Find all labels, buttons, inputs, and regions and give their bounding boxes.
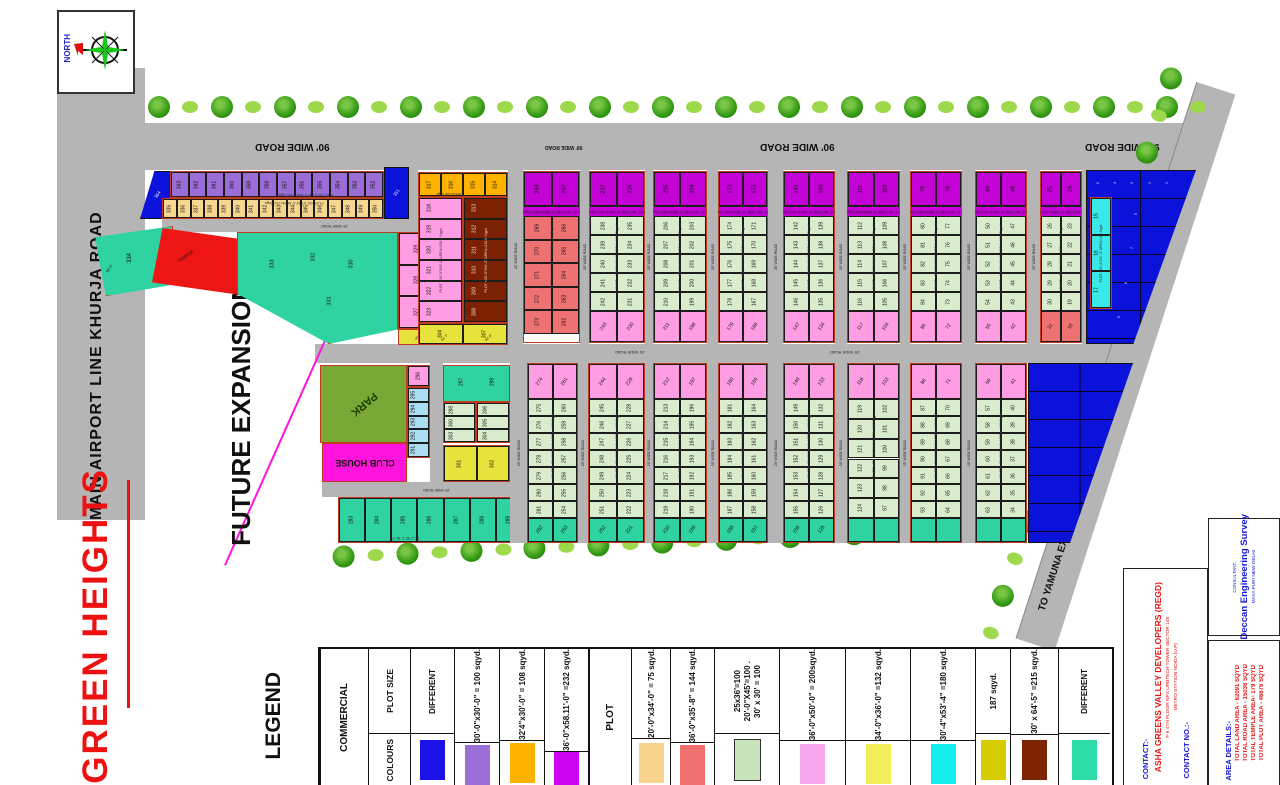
teal-big: 333332330331 xyxy=(237,232,398,344)
plot-number: 142 xyxy=(794,221,799,229)
plot-cell: 234 xyxy=(617,235,644,254)
plot-number: 267 xyxy=(563,184,569,193)
plot-cell: 302 xyxy=(477,446,510,481)
tree-icon xyxy=(904,96,926,118)
plot-number: 64 xyxy=(946,507,951,513)
plot-cell: 172 xyxy=(743,172,767,206)
plot-number: 320 xyxy=(428,245,433,253)
plot-cell: 304 xyxy=(477,429,509,442)
plot-number: 162 xyxy=(753,437,758,445)
plot-number: 284 xyxy=(376,516,381,524)
plot-number: 302 xyxy=(490,459,495,467)
plot-number: 232 xyxy=(628,278,633,286)
area-total-road: TOTAL ROAD AREA - 15036 SQYD xyxy=(1243,664,1249,762)
plot-cell: 92 xyxy=(911,484,936,501)
plot-cell: 83 xyxy=(911,273,936,292)
plot-number: 8 xyxy=(1124,282,1128,284)
plot-cell: 314 xyxy=(485,173,507,196)
plot-cell: 25 xyxy=(1041,172,1061,206)
tree-icon xyxy=(778,96,800,118)
plot-cell: 258 xyxy=(553,433,578,450)
plot-number: 98 xyxy=(884,485,889,491)
plot-number: 301 xyxy=(458,459,463,467)
plot-number: 169 xyxy=(753,259,758,267)
plot-number: 240 xyxy=(601,259,606,267)
plot-number: 206 xyxy=(665,221,670,229)
plot-number: 229 xyxy=(626,377,635,387)
plot-cell: 135 xyxy=(809,292,834,311)
plot-cell: 222 xyxy=(617,501,645,518)
plot-number: 268 xyxy=(535,184,541,193)
legend-text: 30' x 30' = 100 xyxy=(753,665,762,718)
plot-strip: 2442292452282462272472262482252492242502… xyxy=(588,363,645,543)
plot-number: 48 xyxy=(1011,186,1017,192)
legend-size: 187 sqyd. xyxy=(976,649,1010,733)
plot-number: 29 xyxy=(1049,280,1054,286)
plot-cell: 146 xyxy=(784,292,809,311)
plot-number: 203 xyxy=(691,221,696,229)
blue-block: 351 xyxy=(384,167,409,219)
plot-number: 108 xyxy=(884,240,889,248)
tree-icon xyxy=(623,101,639,113)
plot-number: 347 xyxy=(332,204,337,212)
plot-cell: 27 xyxy=(1041,235,1061,254)
road-label: 25' WIDE ROAD xyxy=(583,244,587,270)
plot-cell: 288 xyxy=(470,498,496,542)
plot-cell: 190 xyxy=(680,501,706,518)
plot-number: 304 xyxy=(483,431,488,439)
plot-number: 151 xyxy=(794,437,799,445)
plot-number: 308 xyxy=(473,307,478,315)
plot-cell: 69 xyxy=(936,416,961,433)
road-label: PLOT =36'-0"X58'-11" AREA=232.0 Sqyd. xyxy=(713,210,772,214)
plot-cell: 38 xyxy=(1001,433,1026,450)
plot-cell: 286 xyxy=(417,498,443,542)
plot-number: 156 xyxy=(792,525,801,535)
tree-icon xyxy=(396,542,419,565)
plot-cell: 265 xyxy=(552,240,580,264)
plot-number: 105 xyxy=(884,297,889,305)
plot-number: 126 xyxy=(819,505,824,513)
plot-number: 299 xyxy=(490,378,495,386)
legend-commercial-item-2: 32'4"x30'-0" = 108 sqyd. xyxy=(499,649,544,785)
plot-cell: 284 xyxy=(365,498,391,542)
plot-cell: 148 xyxy=(784,364,809,399)
top-road: 90' WIDE ROAD90' WIDE ROAD90' WIDE ROAD9… xyxy=(145,123,1202,170)
plot-number: 244 xyxy=(598,377,607,387)
plot-number: 124 xyxy=(858,504,863,512)
legend-swatch-cell xyxy=(455,742,499,785)
tree-icon xyxy=(182,101,198,113)
inner-road: 25' WIDE ROAD xyxy=(768,363,783,543)
plot-cell: 180 xyxy=(719,364,743,399)
plot-cell: 167 xyxy=(743,292,767,311)
plot-cell: 115 xyxy=(848,273,874,292)
plot-cell: 138 xyxy=(809,235,834,254)
plot-number: 188 xyxy=(727,525,736,535)
ltblue-col: 295294293292291 xyxy=(407,387,430,458)
plot-number: 271 xyxy=(535,271,540,279)
contact-company: ASHA GREENS VALLEY DEVELOPERS (REGD) xyxy=(1153,582,1163,772)
plot-number: 295 xyxy=(411,391,416,399)
tree-icon xyxy=(308,101,324,113)
plot-number: 226 xyxy=(628,437,633,445)
plot-strip: 2742612752602762592772582782572792562802… xyxy=(527,363,578,543)
plot-number: 187 xyxy=(729,505,734,513)
plot-cell: 169 xyxy=(743,254,767,273)
plot-cell: 250 xyxy=(589,484,617,501)
plot-cell: 277 xyxy=(528,433,553,450)
plot-number: 141 xyxy=(794,184,800,193)
plot-cell: 179 xyxy=(719,311,743,342)
plot-number: 330 xyxy=(350,259,356,268)
plot-cell: 43 xyxy=(1001,292,1026,311)
plot-cell: 142 xyxy=(784,216,809,235)
plot-number: 348 xyxy=(346,204,351,212)
plot-number: 358 xyxy=(266,180,271,188)
plot-cell: 251 xyxy=(589,501,617,518)
plot-cell: 105 xyxy=(874,292,900,311)
plot-cell: 305 xyxy=(477,416,509,429)
plot-number: 56 xyxy=(985,378,992,385)
plot-cell: 90 xyxy=(911,450,936,467)
plot-cell: 242 xyxy=(590,292,617,311)
plot-strip: 2524PLOT =36'-0"X58'-11" AREA=232.0 Sqyd… xyxy=(1040,171,1082,343)
club: CLUB HOUSE xyxy=(322,443,407,482)
plot-cell: 154 xyxy=(784,484,809,501)
plot-cell: 49 xyxy=(976,172,1001,206)
plot-cell: 221 xyxy=(617,518,645,542)
legend-swatch xyxy=(866,744,891,784)
plot-number: 356 xyxy=(301,180,306,188)
plot-cell: 267 xyxy=(552,172,580,206)
plot-cell: 74 xyxy=(936,273,961,292)
tree-icon xyxy=(1149,107,1168,123)
plot-number: 357 xyxy=(283,180,288,188)
plot-number: 179 xyxy=(727,322,736,332)
plot-cell: 270 xyxy=(524,240,552,264)
plot-strip: 4948PLOT =36'-0"X58'-11" AREA=232.0 Sqyd… xyxy=(975,171,1027,343)
plot-cell: 116 xyxy=(848,292,874,311)
plot-cell: 37 xyxy=(1001,450,1026,467)
plot-number: 230 xyxy=(626,322,635,332)
plot-cell: 336 xyxy=(177,199,191,218)
plot-number: 43 xyxy=(1011,299,1016,305)
legend-plot-item-2: 25x36'=10020'-0"X45'=100 .30' x 30' = 10… xyxy=(714,649,779,785)
plot-number: 285 xyxy=(402,516,407,524)
plot-number: 183 xyxy=(729,437,734,445)
plot-number: 196 xyxy=(691,403,696,411)
plot-number: 158 xyxy=(753,505,758,513)
contact-address2: METRO STATION NOIDA (U.P) xyxy=(1174,643,1179,711)
plot-number: 28 xyxy=(1049,261,1054,267)
plot-number: 270 xyxy=(535,247,540,255)
tree-icon xyxy=(497,101,513,113)
plot-cell: 144 xyxy=(784,254,809,273)
plot-cell: 170 xyxy=(743,235,767,254)
plot-cell: 252 xyxy=(589,518,617,542)
plot-number: 233 xyxy=(628,259,633,267)
legend-text: PLOT SIZE xyxy=(385,669,395,713)
plot-number: 335 xyxy=(167,204,172,212)
plot-number: 254 xyxy=(562,505,567,513)
plot-cell: 349 xyxy=(356,199,370,218)
plot-cell: 247 xyxy=(589,433,617,450)
tree-icon xyxy=(1127,101,1143,113)
tree-icon xyxy=(526,96,548,118)
club-label: CLUB HOUSE xyxy=(335,458,395,468)
plot-cell: 168 xyxy=(743,273,767,292)
legend-plot-item-7: 30' x 64'-5" =215 sqyd. xyxy=(1010,649,1058,785)
plot-cell: 145 xyxy=(784,273,809,292)
legend-swatch-cell xyxy=(846,740,910,785)
block-size-text: PLOT =30'-0"X64'-5" AREA=215.0 Sqyd. xyxy=(484,228,488,293)
strip-size-text: PLOT =25'-0"X36'-0" AREA=100 Sqyd. xyxy=(678,224,682,290)
plot-size-band: PLOT =36'-0"X58'-11" AREA=232.0 Sqyd. xyxy=(784,206,834,216)
plot-number: 220 xyxy=(663,525,672,535)
plot-number: 239 xyxy=(601,240,606,248)
plot-number: 146 xyxy=(794,297,799,305)
plot-number: 292 xyxy=(411,432,416,440)
plot-number: 84 xyxy=(921,299,926,305)
yellow-b: 301302 xyxy=(443,445,510,482)
legend-text: 20'-0"x34'-0" = 75 sqyd. xyxy=(647,649,656,738)
plot-number: 58 xyxy=(986,422,991,428)
plot-cell: 103 xyxy=(874,364,900,399)
plot-number: 333 xyxy=(270,259,276,268)
plot-number: 73 xyxy=(946,299,951,305)
plot-number: 83 xyxy=(921,280,926,286)
plot-cell: 249 xyxy=(589,467,617,484)
legend-text: 34'-0"x36'-0" =132 sqyd. xyxy=(874,649,883,740)
green-mini-r: 306305304 xyxy=(476,402,510,443)
plot-number: 69 xyxy=(946,422,951,428)
plot-number: 360 xyxy=(230,180,235,188)
plot-number: 128 xyxy=(819,471,824,479)
plot-cell: 86 xyxy=(911,364,936,399)
plot-number: 288 xyxy=(480,516,485,524)
tree-icon xyxy=(1190,101,1206,113)
plot-number: 275 xyxy=(538,403,543,411)
plot-number: 306 xyxy=(483,405,488,413)
plot-number: 44 xyxy=(1011,280,1016,286)
plot-cell: 113 xyxy=(848,235,874,254)
plot-cell: 202 xyxy=(680,235,706,254)
plot-cell: 156 xyxy=(784,518,809,542)
inner-road: 25' WIDE ROAD xyxy=(578,363,588,543)
strip-size-text: PLOT =25'-0"X36'-0" AREA=100 Sqyd. xyxy=(1059,224,1063,290)
plot-cell: 129 xyxy=(809,450,834,467)
legend-text: 36'-0"x58.11'-0" =232 sqyd. xyxy=(562,649,571,751)
plot-cell: 155 xyxy=(784,501,809,518)
plot-cell: 211 xyxy=(654,311,680,342)
consultant-name: Deccan Engineering Survey xyxy=(1239,514,1250,640)
plot-cell: 66 xyxy=(936,467,961,484)
plot-strip: 205204PLOT =36'-0"X58'-11" AREA=232.0 Sq… xyxy=(653,171,707,343)
plot-cell: 301 xyxy=(444,446,477,481)
plot-number: 71 xyxy=(945,378,952,385)
road-label: 25' WIDE ROAD xyxy=(581,440,585,466)
legend-text: 36'-0"x35'-8" = 144 sqyd. xyxy=(688,649,697,742)
top-road-label: 90' WIDE ROAD xyxy=(255,141,330,152)
plot-cell: 182 xyxy=(719,416,743,433)
plot-number: 191 xyxy=(691,488,696,496)
legend-swatch xyxy=(420,740,445,780)
plot-cell: 153 xyxy=(784,467,809,484)
plot-number: 251 xyxy=(600,505,605,513)
plot-cell xyxy=(848,518,874,542)
legend-plot-item-3: 36'-0"x50'-0" = 200sqyd. xyxy=(779,649,845,785)
area-total-land: TOTAL LAND AREA - 62091 SQYD xyxy=(1235,665,1241,762)
tree-icon xyxy=(431,546,448,559)
plot-number: 282 xyxy=(536,525,545,535)
strip-size-text: PLOT =25'-0"X36'-0" AREA=100 Sqyd. xyxy=(872,224,876,290)
plot-number: 106 xyxy=(884,278,889,286)
plot-number: 117 xyxy=(856,322,865,331)
area-details-box: AREA DETAILS:- TOTAL LAND AREA - 62091 S… xyxy=(1208,640,1280,785)
strip-size-text: PLOT =25'-0"X36'-0" AREA=100 Sqyd. xyxy=(678,412,682,478)
plot-cell: 100 xyxy=(874,439,900,459)
plot-cell: 31 xyxy=(1041,311,1061,342)
plot-number: 354 xyxy=(336,180,341,188)
plot-number: 257 xyxy=(562,454,567,462)
plot-strip: 237236PLOT =36'-0"X58'-11" AREA=232.0 Sq… xyxy=(589,171,645,343)
plot-number: 293 xyxy=(411,418,416,426)
plot-number: 349 xyxy=(360,204,365,212)
plot-number: 55 xyxy=(985,323,992,330)
plot-cell: 307 xyxy=(463,324,507,344)
plot-cell: 21 xyxy=(1061,254,1081,273)
future-expansion-label: FUTURE EXPANSION xyxy=(226,282,257,546)
plot-number: 337 xyxy=(195,204,200,212)
plot-number: 256 xyxy=(562,471,567,479)
plot-cell: 212 xyxy=(654,364,680,399)
plot-number: 123 xyxy=(858,484,863,492)
road-b xyxy=(409,167,418,232)
plot-cell: 197 xyxy=(680,364,706,399)
road-label: 25' WIDE ROAD xyxy=(774,244,778,270)
plot-cell: 279 xyxy=(528,467,553,484)
road-label: 25' WIDE ROAD xyxy=(967,440,971,466)
plot-cell: 303 xyxy=(444,429,475,442)
road-label: 25' WIDE ROAD xyxy=(711,244,715,270)
road-label: 25' WIDE ROAD xyxy=(839,440,843,466)
plot-cell: 335 xyxy=(163,199,177,218)
plot-number: 245 xyxy=(600,403,605,411)
plot-number: 91 xyxy=(921,473,926,479)
plot-number: 221 xyxy=(626,525,635,535)
plot-cell: 85 xyxy=(911,311,936,342)
compass-box: NORTH xyxy=(57,10,135,94)
plot-cell: 282 xyxy=(528,518,553,542)
legend-swatch-cell xyxy=(911,740,975,785)
strip-size-text: PLOT =25'-0"X36'-0" AREA=100 Sqyd. xyxy=(741,224,745,290)
plot-cell: 276 xyxy=(528,416,553,433)
plot-number: 49 xyxy=(986,186,992,192)
plot-number: 195 xyxy=(691,420,696,428)
plot-cell: 278 xyxy=(528,450,553,467)
inner-road: 25' WIDE ROAD xyxy=(768,170,783,344)
plot-number: 332 xyxy=(312,253,318,262)
tree-icon xyxy=(1005,551,1024,567)
legend-swatch xyxy=(465,745,490,785)
inner-road: 25' WIDE ROAD xyxy=(900,170,910,344)
plot-number: 140 xyxy=(819,184,825,193)
plot-cell: 275 xyxy=(528,399,553,416)
plot-number: 134 xyxy=(817,322,826,332)
tree-icon xyxy=(989,582,1017,610)
legend-plot-item-4: 34'-0"x36'-0" =132 sqyd. xyxy=(845,649,910,785)
plot-cell: 82 xyxy=(911,254,936,273)
plot-cell: 359 xyxy=(242,172,260,197)
plot-number: 223 xyxy=(628,488,633,496)
plot-number: 298 xyxy=(450,405,455,413)
plot-cell: 208 xyxy=(654,254,680,273)
plot-number: 252 xyxy=(598,525,607,535)
plot-number: 61 xyxy=(986,473,991,479)
plot-cell: 101 xyxy=(874,419,900,439)
plot-cell: 176 xyxy=(719,254,743,273)
plot-cell: 353 xyxy=(348,172,366,197)
plot-cell: 254 xyxy=(553,501,578,518)
plot-cell: 47 xyxy=(1001,216,1026,235)
plot-cell: 60 xyxy=(976,450,1001,467)
road-c: 25' WIDE ROAD xyxy=(508,167,523,344)
plot-cell: 215 xyxy=(654,433,680,450)
plot-number: 321 xyxy=(428,266,433,274)
plot-cell: 150 xyxy=(784,416,809,433)
legend-text: 30'-0"x30'-0" = 100 sqyd. xyxy=(473,649,482,742)
plot-number: 322 xyxy=(428,287,433,295)
road-f: 25' WIDE ROAD xyxy=(510,363,527,543)
tree-icon xyxy=(938,101,954,113)
inner-road: 25' WIDE ROAD xyxy=(962,363,975,543)
plot-number: 150 xyxy=(794,420,799,428)
block-size-text: PLOT =30'-0"X30'-0" AREA=100 Sqyd. xyxy=(278,193,333,197)
plot-number: 280 xyxy=(538,488,543,496)
plot-cell: 139 xyxy=(809,216,834,235)
plot-cell: 42 xyxy=(1001,311,1026,342)
plot-cell: 219 xyxy=(654,501,680,518)
consultant-city: MAYA PURI NEW DELHI xyxy=(1252,550,1257,603)
plot-cell: 132 xyxy=(809,399,834,416)
plot-number: 145 xyxy=(794,278,799,286)
plot-number: 81 xyxy=(921,242,926,248)
plot-cell: 171 xyxy=(743,216,767,235)
tree-icon xyxy=(749,101,765,113)
plot-strip: 268267PLOT =36'-0"X58'-11" AREA=232.0 Sq… xyxy=(523,171,580,343)
plot-cell: 216 xyxy=(654,450,680,467)
plot-number: 65 xyxy=(946,490,951,496)
plot-number: 338 xyxy=(209,204,214,212)
plot-cell: 271 xyxy=(524,263,552,287)
plot-cell: 201 xyxy=(680,254,706,273)
plot-cell: 114 xyxy=(848,254,874,273)
pink-col: 318319320321322323PLOT =30'-0"X60'-0" AR… xyxy=(418,197,463,323)
tree-icon xyxy=(400,96,422,118)
plot-number: 122 xyxy=(858,464,863,472)
plot-number: 243 xyxy=(599,322,608,332)
plot-number: 75 xyxy=(946,261,951,267)
plot-number: 181 xyxy=(729,403,734,411)
plot-number: 76 xyxy=(946,242,951,248)
plot-number: 116 xyxy=(858,298,863,306)
plot-number: 26 xyxy=(1049,223,1054,229)
plot-cell: 152 xyxy=(784,450,809,467)
plot-number: 287 xyxy=(454,516,459,524)
plot-cell: 46 xyxy=(1001,235,1026,254)
plot-number: 340 xyxy=(236,204,241,212)
